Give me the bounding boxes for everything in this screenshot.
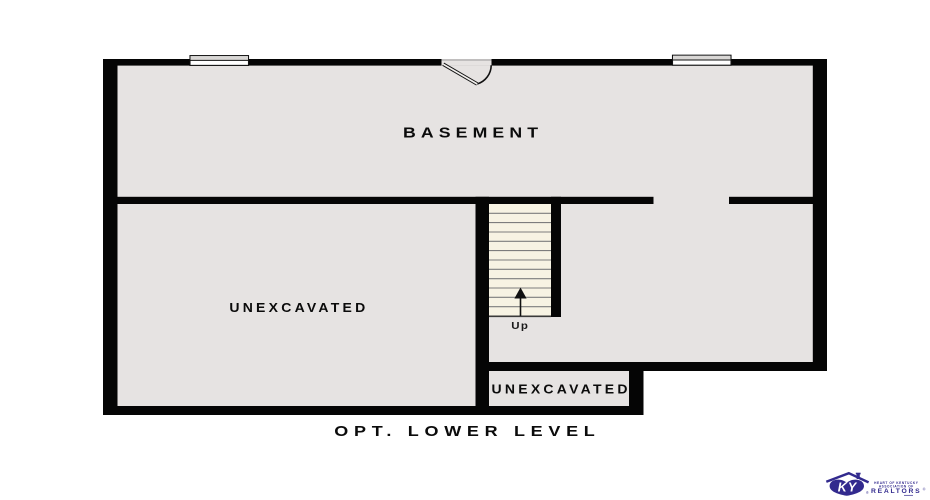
svg-text:®: ® — [866, 491, 869, 495]
svg-text:BASEMENT: BASEMENT — [403, 125, 543, 141]
svg-text:Up: Up — [511, 320, 529, 331]
svg-text:UNEXCAVATED: UNEXCAVATED — [492, 382, 631, 396]
svg-text:OPT. LOWER LEVEL: OPT. LOWER LEVEL — [334, 422, 600, 439]
svg-text:UNEXCAVATED: UNEXCAVATED — [229, 300, 368, 314]
svg-text:KY: KY — [838, 481, 858, 495]
svg-text:REALTORS: REALTORS — [871, 488, 921, 495]
svg-text:®: ® — [923, 488, 926, 492]
